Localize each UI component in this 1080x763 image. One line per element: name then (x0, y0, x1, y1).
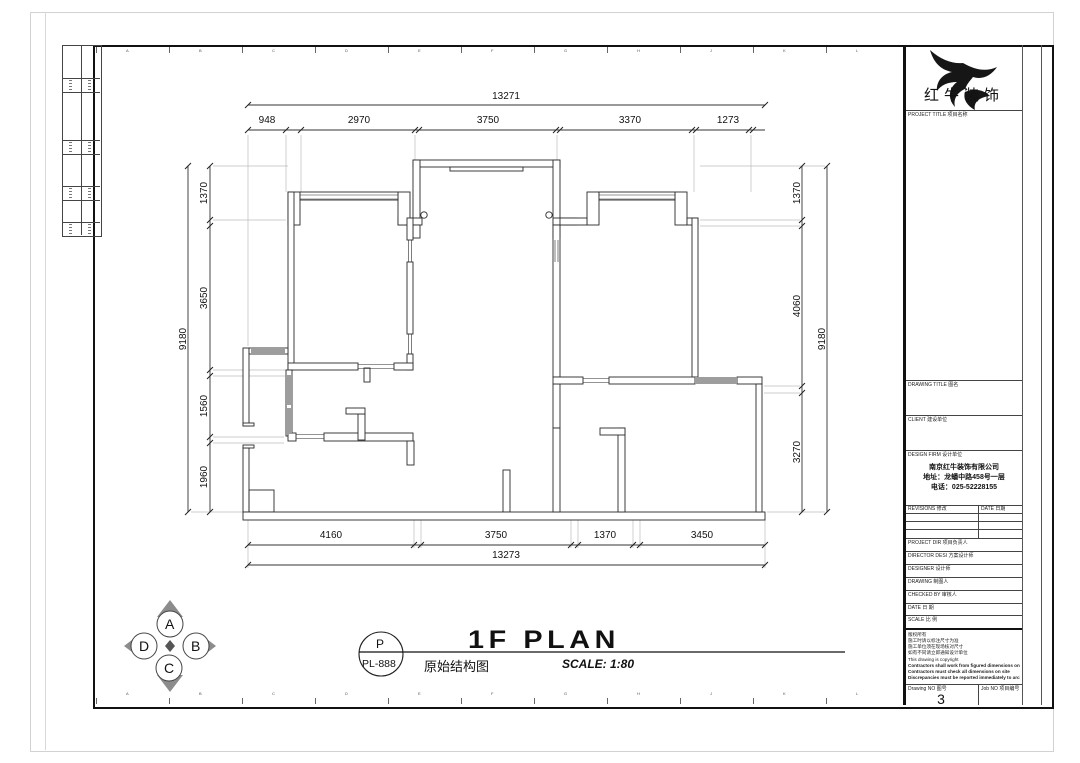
titleblock-line (906, 110, 1022, 111)
note-en: Discrepancies must be reported immediate… (908, 675, 1020, 681)
dim-bottom-seg: 4160 (301, 531, 361, 541)
compass (124, 600, 216, 692)
titleblock-line (906, 684, 1022, 685)
revisions-label: REVISIONS 修改 (908, 507, 947, 512)
plan-title-cn: 原始结构图 (424, 656, 489, 675)
walls (243, 160, 765, 520)
dim-left-seg: 1560 (200, 395, 210, 417)
dim-top-overall: 13271 (476, 92, 536, 102)
client-label: CLIENT 建设单位 (908, 418, 947, 423)
company-name: 南京红牛装饰有限公司 (906, 463, 1022, 472)
project-title-label: PROJECT TITLE 项目名称 (908, 113, 968, 118)
drawing-number: 3 (906, 691, 976, 707)
dim-top-seg: 3750 (458, 116, 518, 126)
titleblock-line (906, 603, 1022, 604)
drawing-no-divider (978, 684, 979, 705)
dim-right-overall: 9180 (818, 328, 828, 350)
company-phone: 电话：025-52228155 (906, 483, 1022, 492)
dim-left-overall: 9180 (179, 328, 189, 350)
titleblock-line (906, 564, 1022, 565)
dim-right-seg: 3270 (793, 441, 803, 463)
compass-letter-west: D (139, 638, 149, 654)
window-hatches (251, 348, 737, 434)
dim-top-seg: 2970 (329, 116, 389, 126)
callout-ref-letter: P (376, 637, 384, 651)
dim-bottom-seg: 3450 (672, 531, 732, 541)
brand-name: 红牛装饰 (906, 84, 1022, 105)
drawing-sheet: A B C D E F G H J K L A B C D E F G H J … (0, 0, 1080, 763)
titleblock-line (906, 450, 1022, 451)
note-cn: 如有不同请立即通知设计单位 (908, 650, 1020, 656)
dim-bottom-seg: 3750 (466, 531, 526, 541)
callout-sheet-number: PL-888 (362, 658, 396, 670)
titleblock-line (906, 538, 1022, 539)
dim-right-seg: 1370 (793, 182, 803, 204)
revisions-date-label: DATE 日期 (981, 507, 1005, 512)
titleblock-line (906, 380, 1022, 381)
titleblock-line (906, 415, 1022, 416)
compass-letter-north: A (165, 616, 174, 632)
titleblock-line (906, 615, 1022, 616)
compass-letter-south: C (164, 660, 174, 676)
field-drawing: DRAWING 制图人 (908, 580, 948, 585)
design-firm-label: DESIGN FIRM 设计单位 (908, 453, 962, 458)
compass-center-diamond (165, 640, 175, 652)
titleblock-line (906, 590, 1022, 591)
plan-scale: SCALE: 1:80 (562, 657, 634, 671)
dim-left-seg: 1960 (200, 466, 210, 488)
drawing-title-label: DRAWING TITLE 图名 (908, 383, 958, 388)
titleblock-thick-line (906, 628, 1022, 630)
compass-letter-east: B (191, 638, 200, 654)
field-designer: DESIGNER 设计师 (908, 567, 951, 572)
dim-right-seg: 4060 (793, 295, 803, 317)
dim-bottom-seg: 1370 (575, 531, 635, 541)
dim-top-seg: 1273 (698, 116, 758, 126)
plan-title: 1F PLAN (468, 626, 620, 655)
field-checked-by: CHECKED BY 审核人 (908, 593, 957, 598)
field-date: DATE 日 期 (908, 606, 934, 611)
job-no-label: Job NO 项目编号 (981, 687, 1019, 692)
dim-top-seg: 3370 (600, 116, 660, 126)
company-address: 地址：龙蟠中路458号一层 (906, 473, 1022, 482)
dim-left-seg: 3650 (200, 287, 210, 309)
titleblock-line (906, 577, 1022, 578)
window-lines (296, 195, 675, 439)
structural-columns (421, 212, 552, 218)
titleblock-line (906, 551, 1022, 552)
titleblock-line (906, 521, 1022, 522)
titleblock-line (906, 513, 1022, 514)
field-project-dir: PROJECT DIR 项目负责人 (908, 541, 968, 546)
dim-left-seg: 1370 (200, 182, 210, 204)
titleblock-line (906, 529, 1022, 530)
dim-bottom-overall: 13273 (476, 551, 536, 561)
field-scale: SCALE 比 例 (908, 618, 937, 623)
field-director-design: DIRECTOR DESI 方案设计师 (908, 554, 973, 559)
dim-top-seg: 948 (237, 116, 297, 126)
